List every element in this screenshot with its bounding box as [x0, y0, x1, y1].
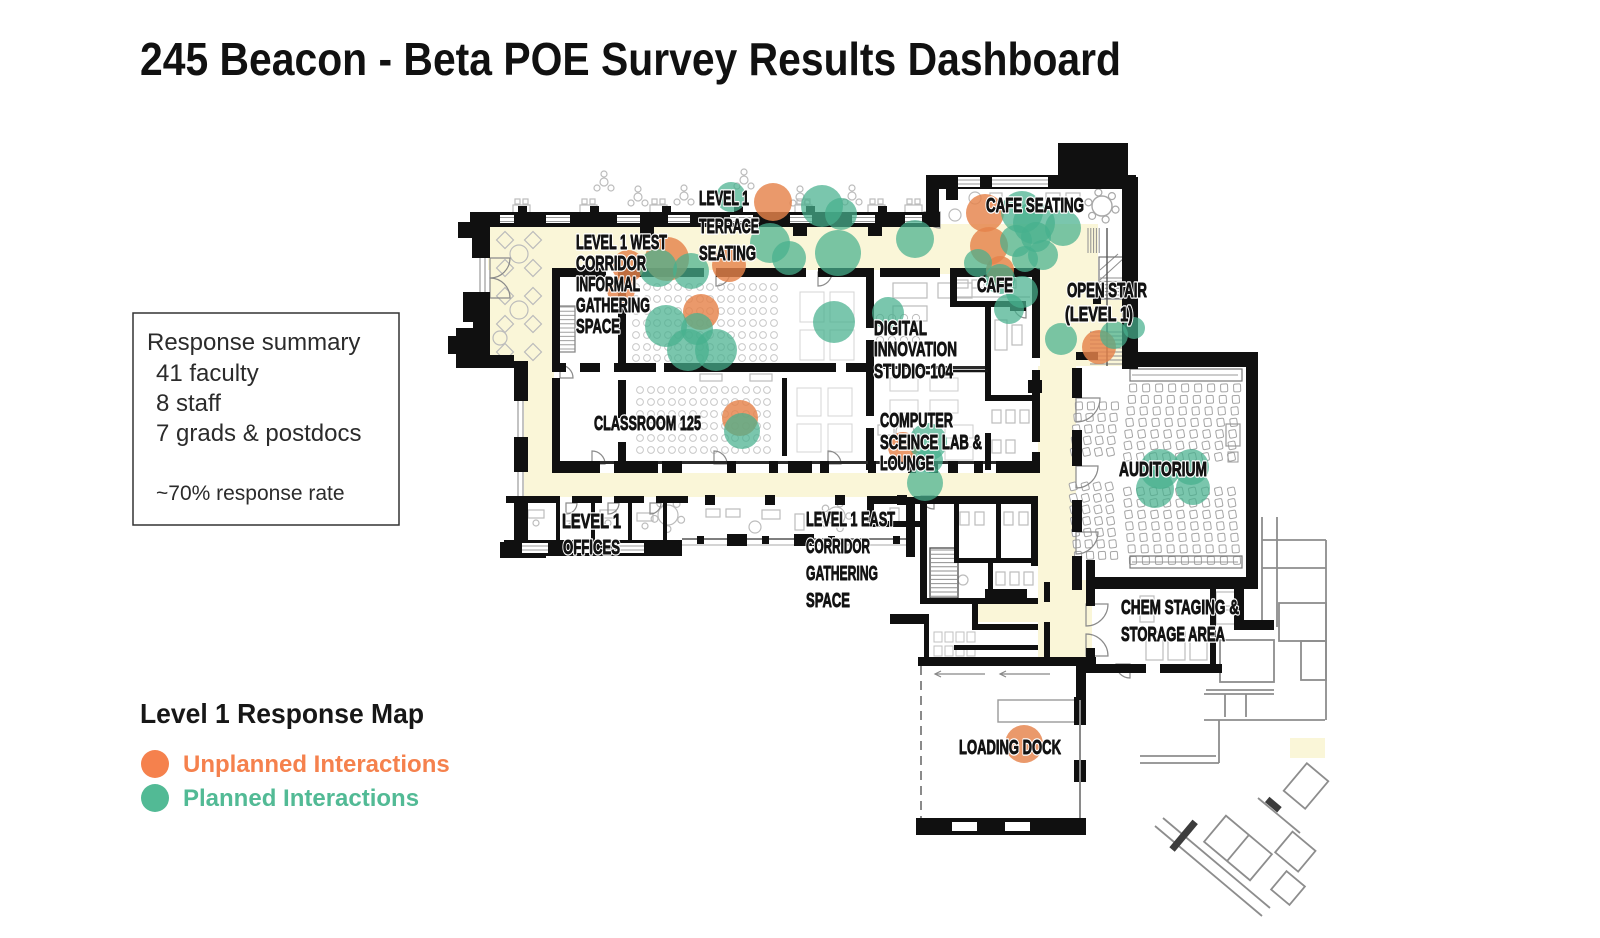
svg-text:8 staff: 8 staff: [156, 390, 221, 417]
svg-text:INNOVATION: INNOVATION: [874, 339, 957, 361]
svg-text:Level 1 Response Map: Level 1 Response Map: [140, 698, 424, 729]
svg-text:(LEVEL 1): (LEVEL 1): [1065, 304, 1133, 326]
svg-text:7 grads & postdocs: 7 grads & postdocs: [156, 420, 361, 447]
svg-text:DIGITAL: DIGITAL: [874, 318, 927, 340]
svg-text:CAFE: CAFE: [977, 275, 1013, 297]
svg-text:LEVEL 1: LEVEL 1: [562, 511, 621, 533]
svg-text:245 Beacon - Beta POE Survey R: 245 Beacon - Beta POE Survey Results Das…: [140, 33, 1121, 85]
svg-text:CORRIDOR: CORRIDOR: [576, 253, 646, 275]
svg-text:LEVEL 1 EAST: LEVEL 1 EAST: [806, 509, 895, 531]
svg-text:CORRIDOR: CORRIDOR: [806, 536, 870, 558]
svg-text:SPACE: SPACE: [806, 590, 850, 612]
svg-text:TERRACE: TERRACE: [699, 216, 759, 238]
svg-text:CLASSROOM 125: CLASSROOM 125: [594, 413, 701, 435]
svg-text:~70% response rate: ~70% response rate: [156, 482, 345, 505]
svg-text:Unplanned Interactions: Unplanned Interactions: [183, 751, 450, 778]
svg-text:GATHERING: GATHERING: [806, 563, 878, 585]
svg-text:STUDIO-104: STUDIO-104: [874, 361, 954, 383]
svg-text:COMPUTER: COMPUTER: [880, 410, 953, 432]
svg-text:GATHERING: GATHERING: [576, 295, 650, 317]
svg-text:41 faculty: 41 faculty: [156, 360, 259, 387]
svg-text:CHEM STAGING &: CHEM STAGING &: [1121, 597, 1239, 619]
svg-text:LOUNGE: LOUNGE: [880, 453, 934, 475]
svg-text:LEVEL 1: LEVEL 1: [699, 188, 749, 210]
svg-text:INFORMAL: INFORMAL: [576, 274, 640, 296]
svg-text:OFFICES: OFFICES: [563, 537, 620, 559]
svg-text:CAFE SEATING: CAFE SEATING: [986, 195, 1084, 217]
svg-text:STORAGE AREA: STORAGE AREA: [1121, 624, 1225, 646]
svg-text:Response summary: Response summary: [147, 329, 360, 356]
svg-text:LOADING DOCK: LOADING DOCK: [959, 737, 1061, 759]
svg-text:SCEINCE LAB &: SCEINCE LAB &: [880, 432, 982, 454]
svg-text:AUDITORIUM: AUDITORIUM: [1119, 459, 1207, 481]
svg-text:OPEN STAIR: OPEN STAIR: [1067, 280, 1147, 302]
svg-text:SPACE: SPACE: [576, 316, 620, 338]
svg-text:SEATING: SEATING: [699, 243, 756, 265]
svg-text:LEVEL 1 WEST: LEVEL 1 WEST: [576, 232, 667, 254]
svg-text:Planned Interactions: Planned Interactions: [183, 785, 419, 812]
